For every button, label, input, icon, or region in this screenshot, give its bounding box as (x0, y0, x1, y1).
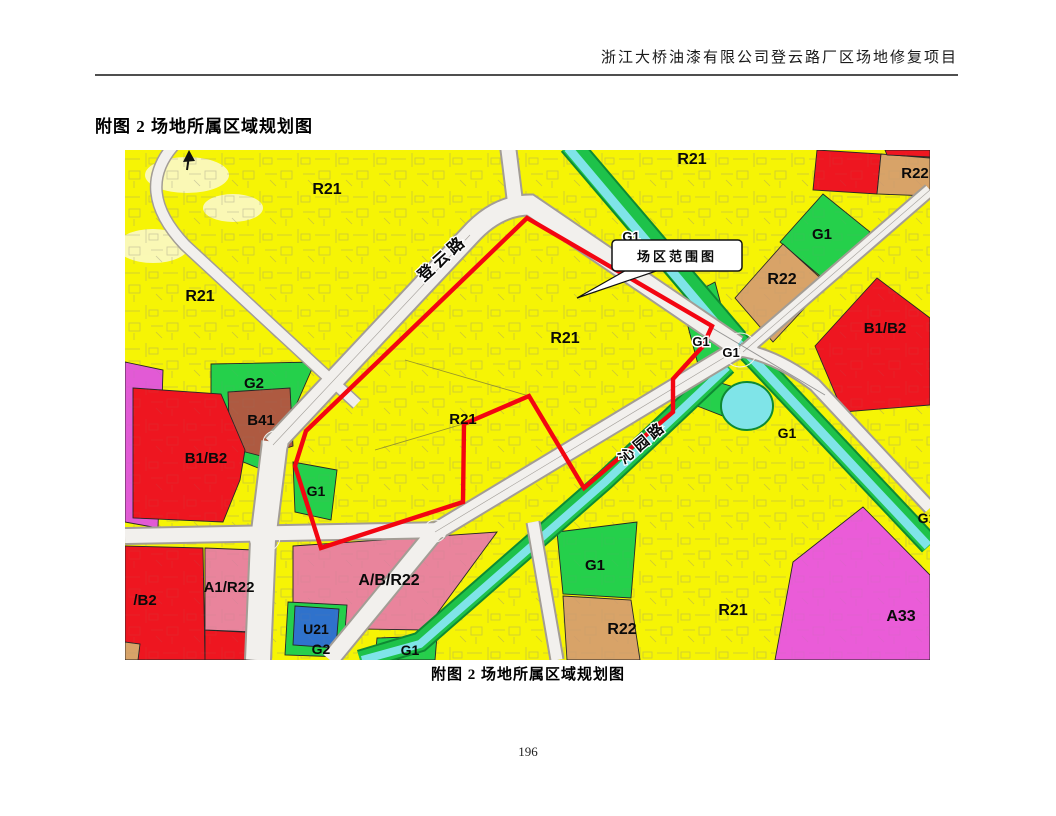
zone-label: G2 (244, 375, 264, 392)
document-page: 浙江大桥油漆有限公司登云路厂区场地修复项目 附图 2 场地所属区域规划图 (0, 0, 1056, 816)
zone-label: B1/B2 (864, 320, 907, 337)
zone-label: A/B/R22 (358, 572, 419, 589)
zone-label: A1/R22 (204, 579, 255, 596)
zone-label: B1/B2 (185, 450, 228, 467)
figure-caption: 附图 2 场地所属区域规划图 (0, 663, 1056, 684)
zone-label: G1 (812, 226, 832, 243)
zone-label: G2 (312, 641, 331, 657)
zone-label: G1 (401, 642, 420, 658)
zone-label: R21 (550, 330, 579, 347)
zone-label: R21 (312, 181, 341, 198)
zone-label: G1 (585, 557, 605, 574)
zone-label: /B2 (133, 592, 156, 609)
zone-label: U21 (303, 621, 329, 637)
planning-map: R21R21R22G1R22B1/B2R21R21G1G1R21G1G1G2B4… (125, 150, 930, 660)
zone-label: R22 (607, 621, 636, 638)
page-header: 浙江大桥油漆有限公司登云路厂区场地修复项目 (95, 46, 958, 67)
zone-label: G1 (778, 425, 797, 441)
callout-label: 场区范围图 (637, 249, 717, 264)
zone-label: R22 (767, 271, 796, 288)
zone-label: R21 (677, 151, 706, 168)
zone-label: G1 (918, 510, 930, 526)
zone-label: G1 (692, 334, 709, 349)
zone-label: R21 (185, 288, 214, 305)
zone-label: R21 (718, 602, 747, 619)
planning-map-svg: R21R21R22G1R22B1/B2R21R21G1G1R21G1G1G2B4… (125, 150, 930, 660)
header-rule (95, 74, 958, 76)
zone-label: B41 (247, 412, 275, 429)
zone-label: G1 (722, 345, 739, 360)
zone-label: R22 (901, 165, 929, 182)
figure-title: 附图 2 场地所属区域规划图 (95, 112, 313, 137)
zone-label: R21 (449, 411, 477, 428)
channel-pond (721, 382, 773, 430)
zone-label: G1 (307, 483, 326, 499)
zone-label: A33 (886, 608, 915, 625)
page-number: 196 (0, 744, 1056, 760)
